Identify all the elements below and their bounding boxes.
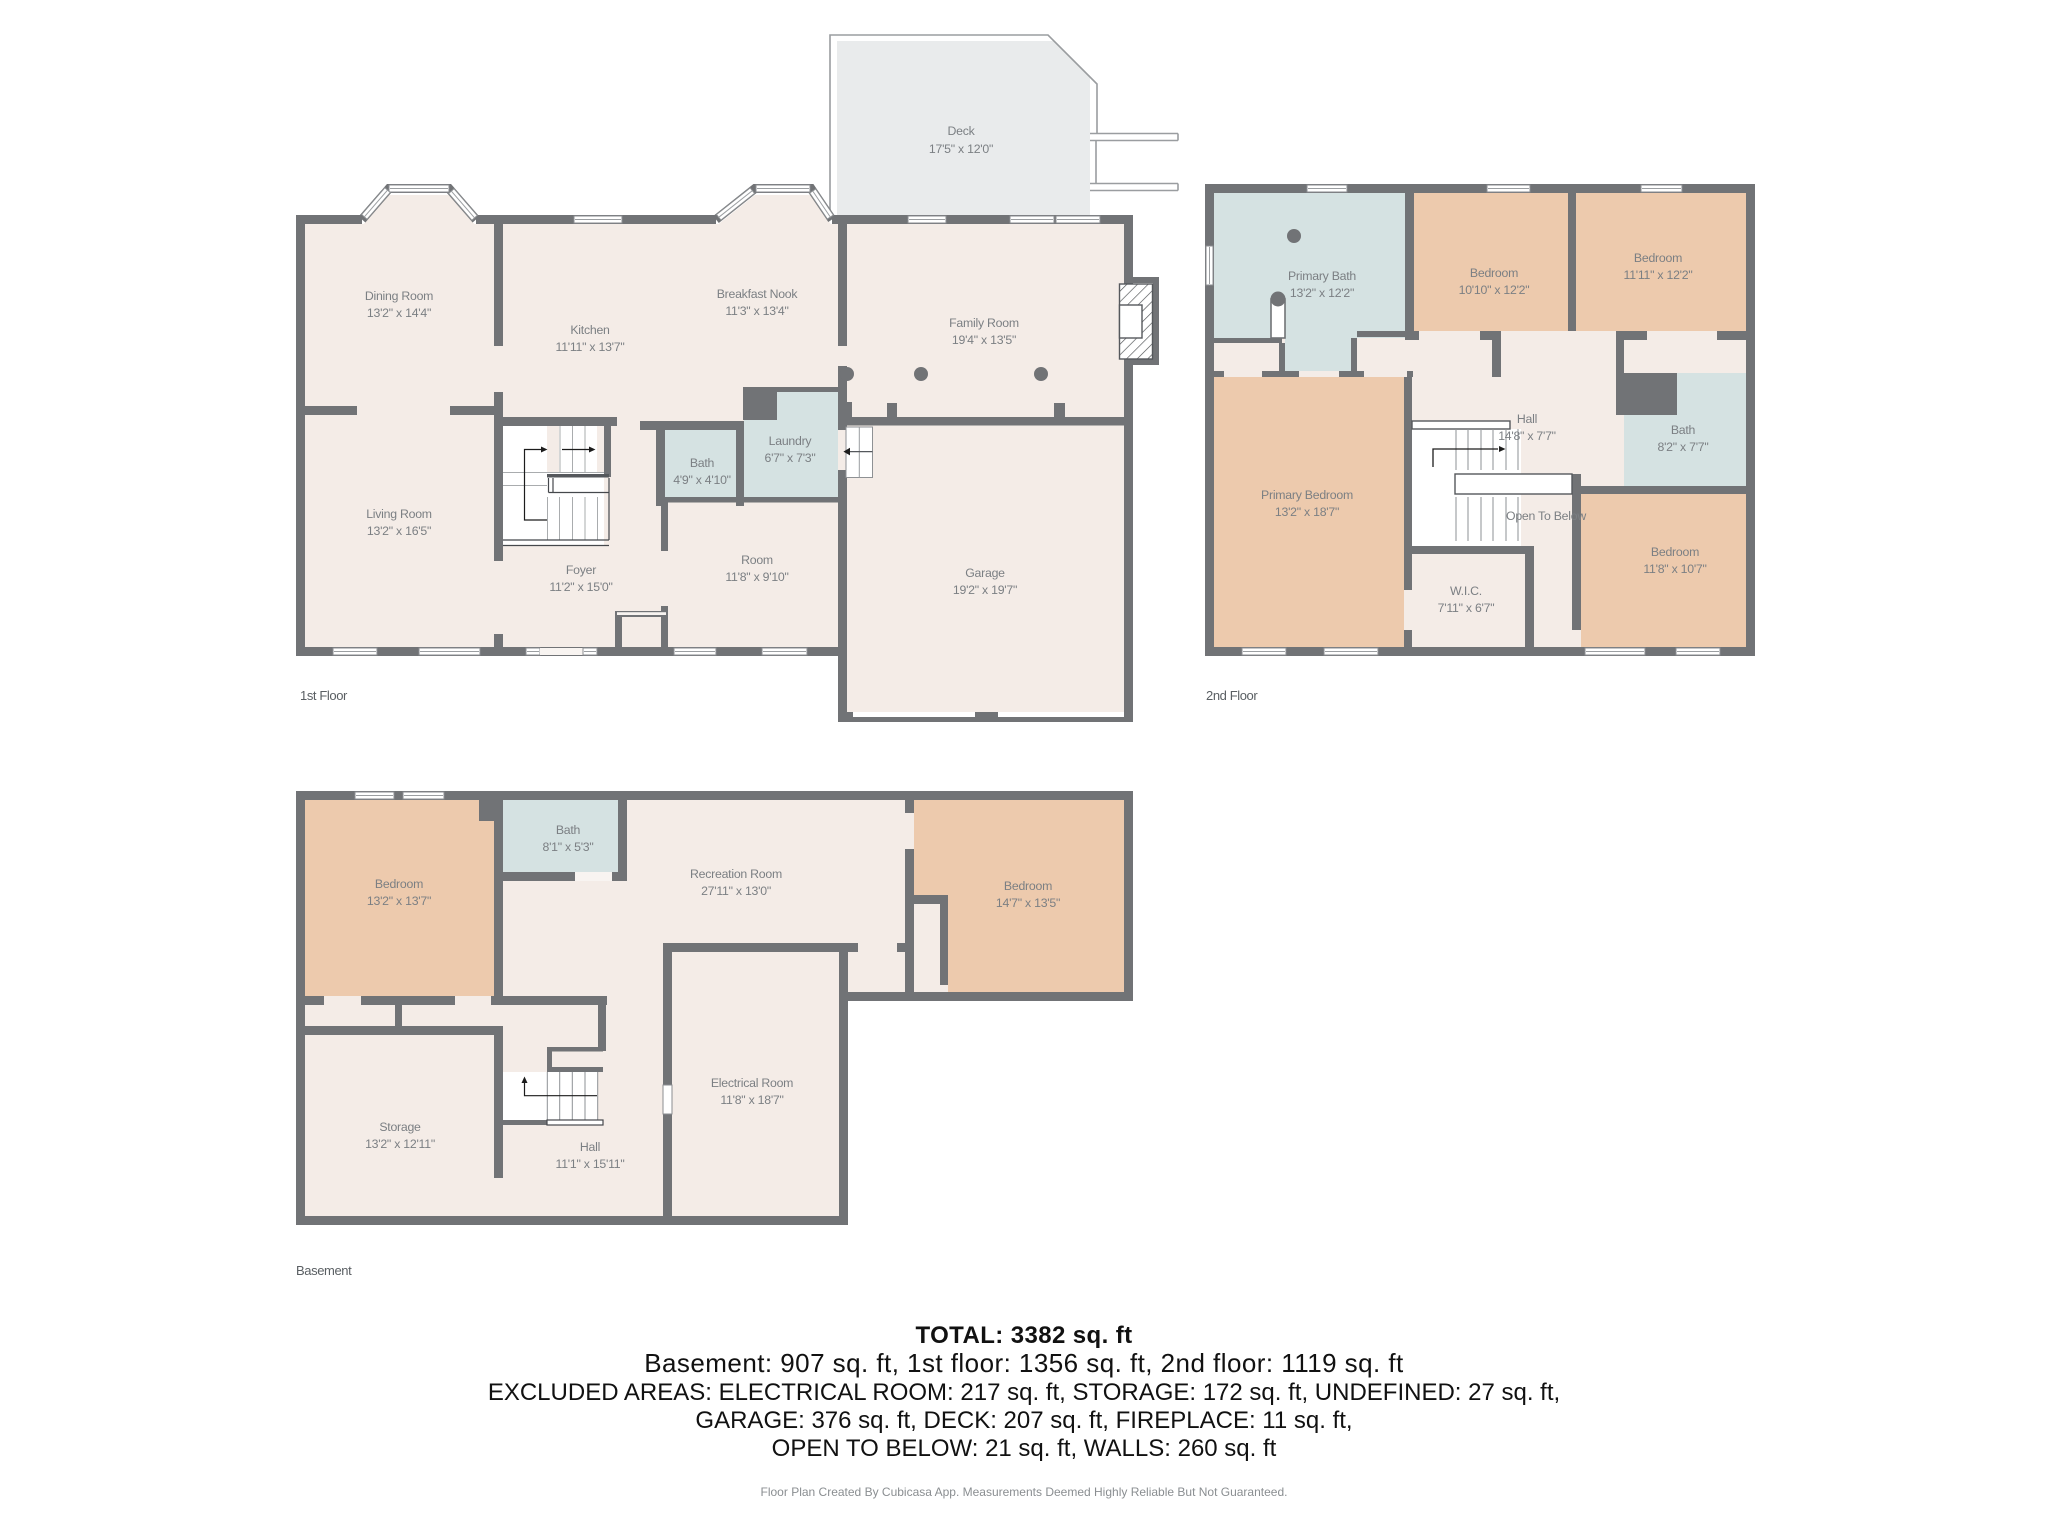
svg-text:1st Floor: 1st Floor: [300, 688, 348, 703]
svg-text:GARAGE: 376 sq. ft, DECK: 207: GARAGE: 376 sq. ft, DECK: 207 sq. ft, FI…: [695, 1407, 1352, 1434]
svg-text:Primary Bath: Primary Bath: [1288, 269, 1356, 283]
svg-text:Bedroom: Bedroom: [1634, 251, 1682, 265]
svg-text:Hall: Hall: [1517, 412, 1537, 426]
svg-text:Breakfast Nook: Breakfast Nook: [717, 287, 799, 301]
svg-text:Deck: Deck: [947, 124, 975, 138]
svg-text:Bedroom: Bedroom: [375, 877, 423, 891]
svg-text:11'2" x 15'0": 11'2" x 15'0": [549, 580, 612, 594]
svg-text:Garage: Garage: [965, 566, 1005, 580]
svg-text:Bath: Bath: [1671, 423, 1696, 437]
svg-text:13'2" x 18'7": 13'2" x 18'7": [1275, 505, 1339, 519]
svg-text:13'2" x 12'2": 13'2" x 12'2": [1290, 286, 1354, 300]
svg-text:Floor Plan Created By Cubicasa: Floor Plan Created By Cubicasa App. Meas…: [761, 1485, 1288, 1499]
svg-text:19'4" x 13'5": 19'4" x 13'5": [952, 333, 1016, 347]
svg-text:Kitchen: Kitchen: [570, 323, 610, 337]
svg-text:13'2" x 13'7": 13'2" x 13'7": [367, 894, 431, 908]
svg-text:Recreation Room: Recreation Room: [690, 867, 782, 881]
svg-text:Room: Room: [741, 553, 773, 567]
svg-text:4'9" x 4'10": 4'9" x 4'10": [673, 473, 731, 487]
svg-text:Basement: Basement: [296, 1263, 352, 1278]
svg-text:7'11" x 6'7": 7'11" x 6'7": [1438, 601, 1495, 615]
svg-text:8'2" x 7'7": 8'2" x 7'7": [1657, 440, 1708, 454]
svg-text:13'2" x 12'11": 13'2" x 12'11": [365, 1137, 435, 1151]
svg-text:Basement: 907 sq. ft, 1st floo: Basement: 907 sq. ft, 1st floor: 1356 sq…: [644, 1348, 1404, 1378]
svg-text:10'10" x 12'2": 10'10" x 12'2": [1459, 283, 1530, 297]
svg-text:Open To Below: Open To Below: [1506, 509, 1586, 523]
svg-text:Bath: Bath: [556, 823, 581, 837]
svg-text:27'11" x 13'0": 27'11" x 13'0": [701, 884, 771, 898]
svg-text:11'3" x 13'4": 11'3" x 13'4": [725, 304, 788, 318]
svg-text:11'1" x 15'11": 11'1" x 15'11": [556, 1157, 625, 1171]
svg-text:Hall: Hall: [580, 1140, 600, 1154]
svg-text:Dining Room: Dining Room: [365, 289, 433, 303]
svg-text:EXCLUDED AREAS: ELECTRICAL ROO: EXCLUDED AREAS: ELECTRICAL ROOM: 217 sq.…: [488, 1379, 1560, 1406]
svg-text:13'2" x 14'4": 13'2" x 14'4": [367, 306, 431, 320]
svg-text:Bath: Bath: [690, 456, 715, 470]
svg-text:Electrical Room: Electrical Room: [711, 1076, 793, 1090]
svg-text:6'7" x 7'3": 6'7" x 7'3": [764, 451, 815, 465]
svg-text:2nd Floor: 2nd Floor: [1206, 688, 1258, 703]
svg-text:19'2" x 19'7": 19'2" x 19'7": [953, 583, 1017, 597]
svg-text:Bedroom: Bedroom: [1470, 266, 1518, 280]
svg-text:8'1" x 5'3": 8'1" x 5'3": [542, 840, 593, 854]
svg-text:TOTAL: 3382 sq. ft: TOTAL: 3382 sq. ft: [915, 1322, 1132, 1349]
svg-text:Storage: Storage: [379, 1120, 421, 1134]
svg-text:Bedroom: Bedroom: [1004, 879, 1052, 893]
svg-text:Family Room: Family Room: [949, 316, 1019, 330]
svg-text:Laundry: Laundry: [769, 434, 813, 448]
svg-text:Primary Bedroom: Primary Bedroom: [1261, 488, 1353, 502]
svg-text:11'8" x 18'7": 11'8" x 18'7": [720, 1093, 783, 1107]
svg-text:Living Room: Living Room: [366, 507, 432, 521]
svg-text:11'11" x 12'2": 11'11" x 12'2": [1624, 268, 1693, 282]
svg-text:13'2" x 16'5": 13'2" x 16'5": [367, 524, 431, 538]
svg-text:11'8" x 9'10": 11'8" x 9'10": [725, 570, 788, 584]
svg-text:17'5" x 12'0": 17'5" x 12'0": [929, 142, 993, 156]
svg-text:OPEN TO BELOW: 21 sq. ft, WALL: OPEN TO BELOW: 21 sq. ft, WALLS: 260 sq.…: [772, 1435, 1277, 1462]
svg-text:11'11" x 13'7": 11'11" x 13'7": [556, 340, 625, 354]
svg-text:Bedroom: Bedroom: [1651, 545, 1699, 559]
svg-text:W.I.C.: W.I.C.: [1450, 584, 1482, 598]
svg-text:14'8" x 7'7": 14'8" x 7'7": [1498, 429, 1556, 443]
svg-text:Foyer: Foyer: [566, 563, 596, 577]
svg-text:14'7" x 13'5": 14'7" x 13'5": [996, 896, 1060, 910]
svg-text:11'8" x 10'7": 11'8" x 10'7": [1643, 562, 1706, 576]
